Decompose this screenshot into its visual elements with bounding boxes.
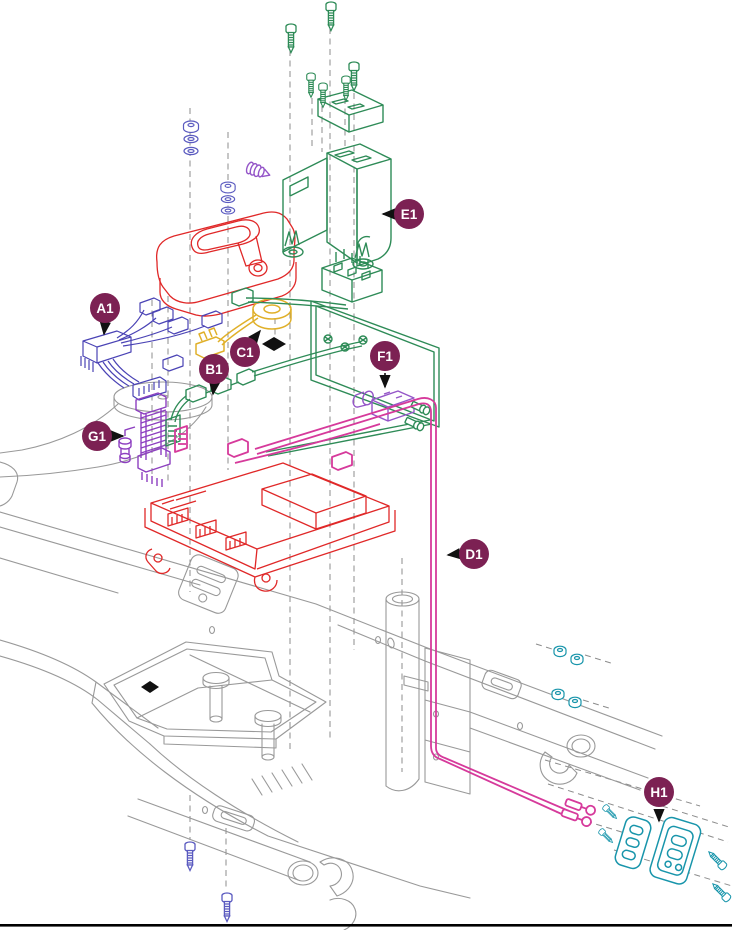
callout-b1-label: B1	[205, 362, 223, 377]
h1-nut	[554, 646, 566, 656]
parts-diagram-page: When applicable, assemblies are grouped …	[0, 0, 732, 930]
callout-d1-label: D1	[465, 547, 483, 562]
callout-c1-label: C1	[236, 345, 254, 360]
callout-a1-label: A1	[96, 301, 114, 316]
callout-g1-label: G1	[88, 429, 107, 444]
exploded-diagram: A1 B1 C1 D1 E1 F1 G1	[0, 0, 732, 930]
callout-e1-label: E1	[401, 207, 418, 222]
footer-rule	[0, 924, 732, 927]
h1-nut	[571, 654, 583, 664]
h1-nut	[552, 689, 564, 699]
h1-nut	[569, 697, 581, 707]
callout-f1-label: F1	[377, 349, 393, 364]
callout-h1-label: H1	[650, 785, 668, 800]
washer-stack	[184, 121, 199, 155]
washer-stack	[221, 182, 235, 214]
